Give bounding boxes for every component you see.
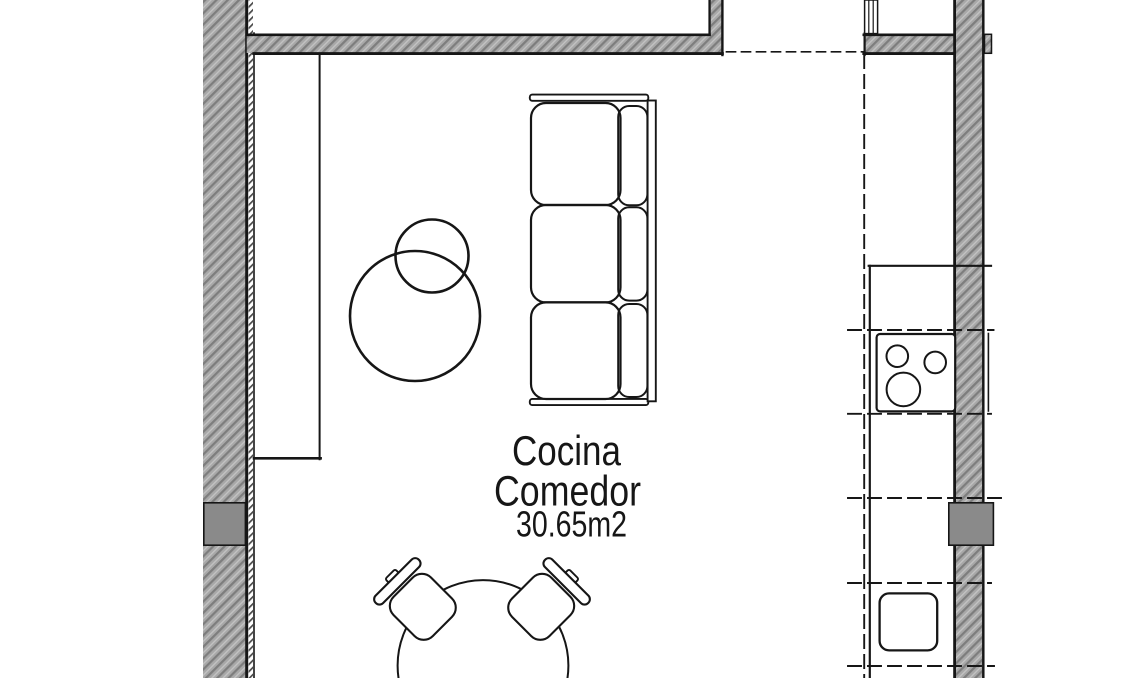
cooktop-icon: [877, 334, 956, 411]
left-wall-hatch: [203, 0, 246, 678]
sofa-top-rail: [530, 95, 649, 101]
structural-column-icon: [949, 503, 994, 545]
sofa-back-cushion: [618, 304, 647, 397]
sofa-seat-cushion: [531, 103, 621, 205]
sofa-seat-cushion: [531, 302, 621, 399]
coffee-table-icon: [350, 220, 480, 382]
upper-room-corner-wall-hatch: [711, 0, 723, 36]
room-name-line1: Cocina: [512, 427, 622, 474]
left-wall-insulation-strip: [249, 0, 253, 678]
sink-icon: [880, 593, 938, 650]
burner-icon: [887, 345, 909, 367]
floor-plan-svg: Cocina Comedor 30.65m2: [0, 0, 1125, 678]
structural-column-icon: [204, 503, 246, 545]
top-right-wall-hatch: [865, 36, 955, 53]
burner-icon: [924, 352, 946, 374]
sofa-back-panel: [648, 101, 656, 402]
sofa-back-cushion: [618, 207, 647, 300]
room-label: Cocina Comedor 30.65m2: [494, 427, 641, 545]
burner-icon: [887, 373, 921, 407]
dining-set: [369, 553, 596, 678]
right-wall-hatch: [956, 0, 982, 678]
wardrobe-icon: [254, 56, 321, 460]
coffee-table-large-circle: [350, 251, 480, 381]
sofa-back-cushion: [618, 106, 647, 205]
floor-plan-canvas: Cocina Comedor 30.65m2: [0, 0, 1125, 678]
top-wall-hatch: [247, 36, 724, 53]
coffee-table-small-circle: [396, 220, 469, 293]
window-jamb-icon: [865, 0, 878, 34]
room-area-label: 30.65m2: [516, 504, 627, 545]
sofa-seat-cushion: [531, 205, 621, 302]
sofa-icon: [530, 95, 656, 406]
right-wall-notch: [985, 34, 992, 53]
